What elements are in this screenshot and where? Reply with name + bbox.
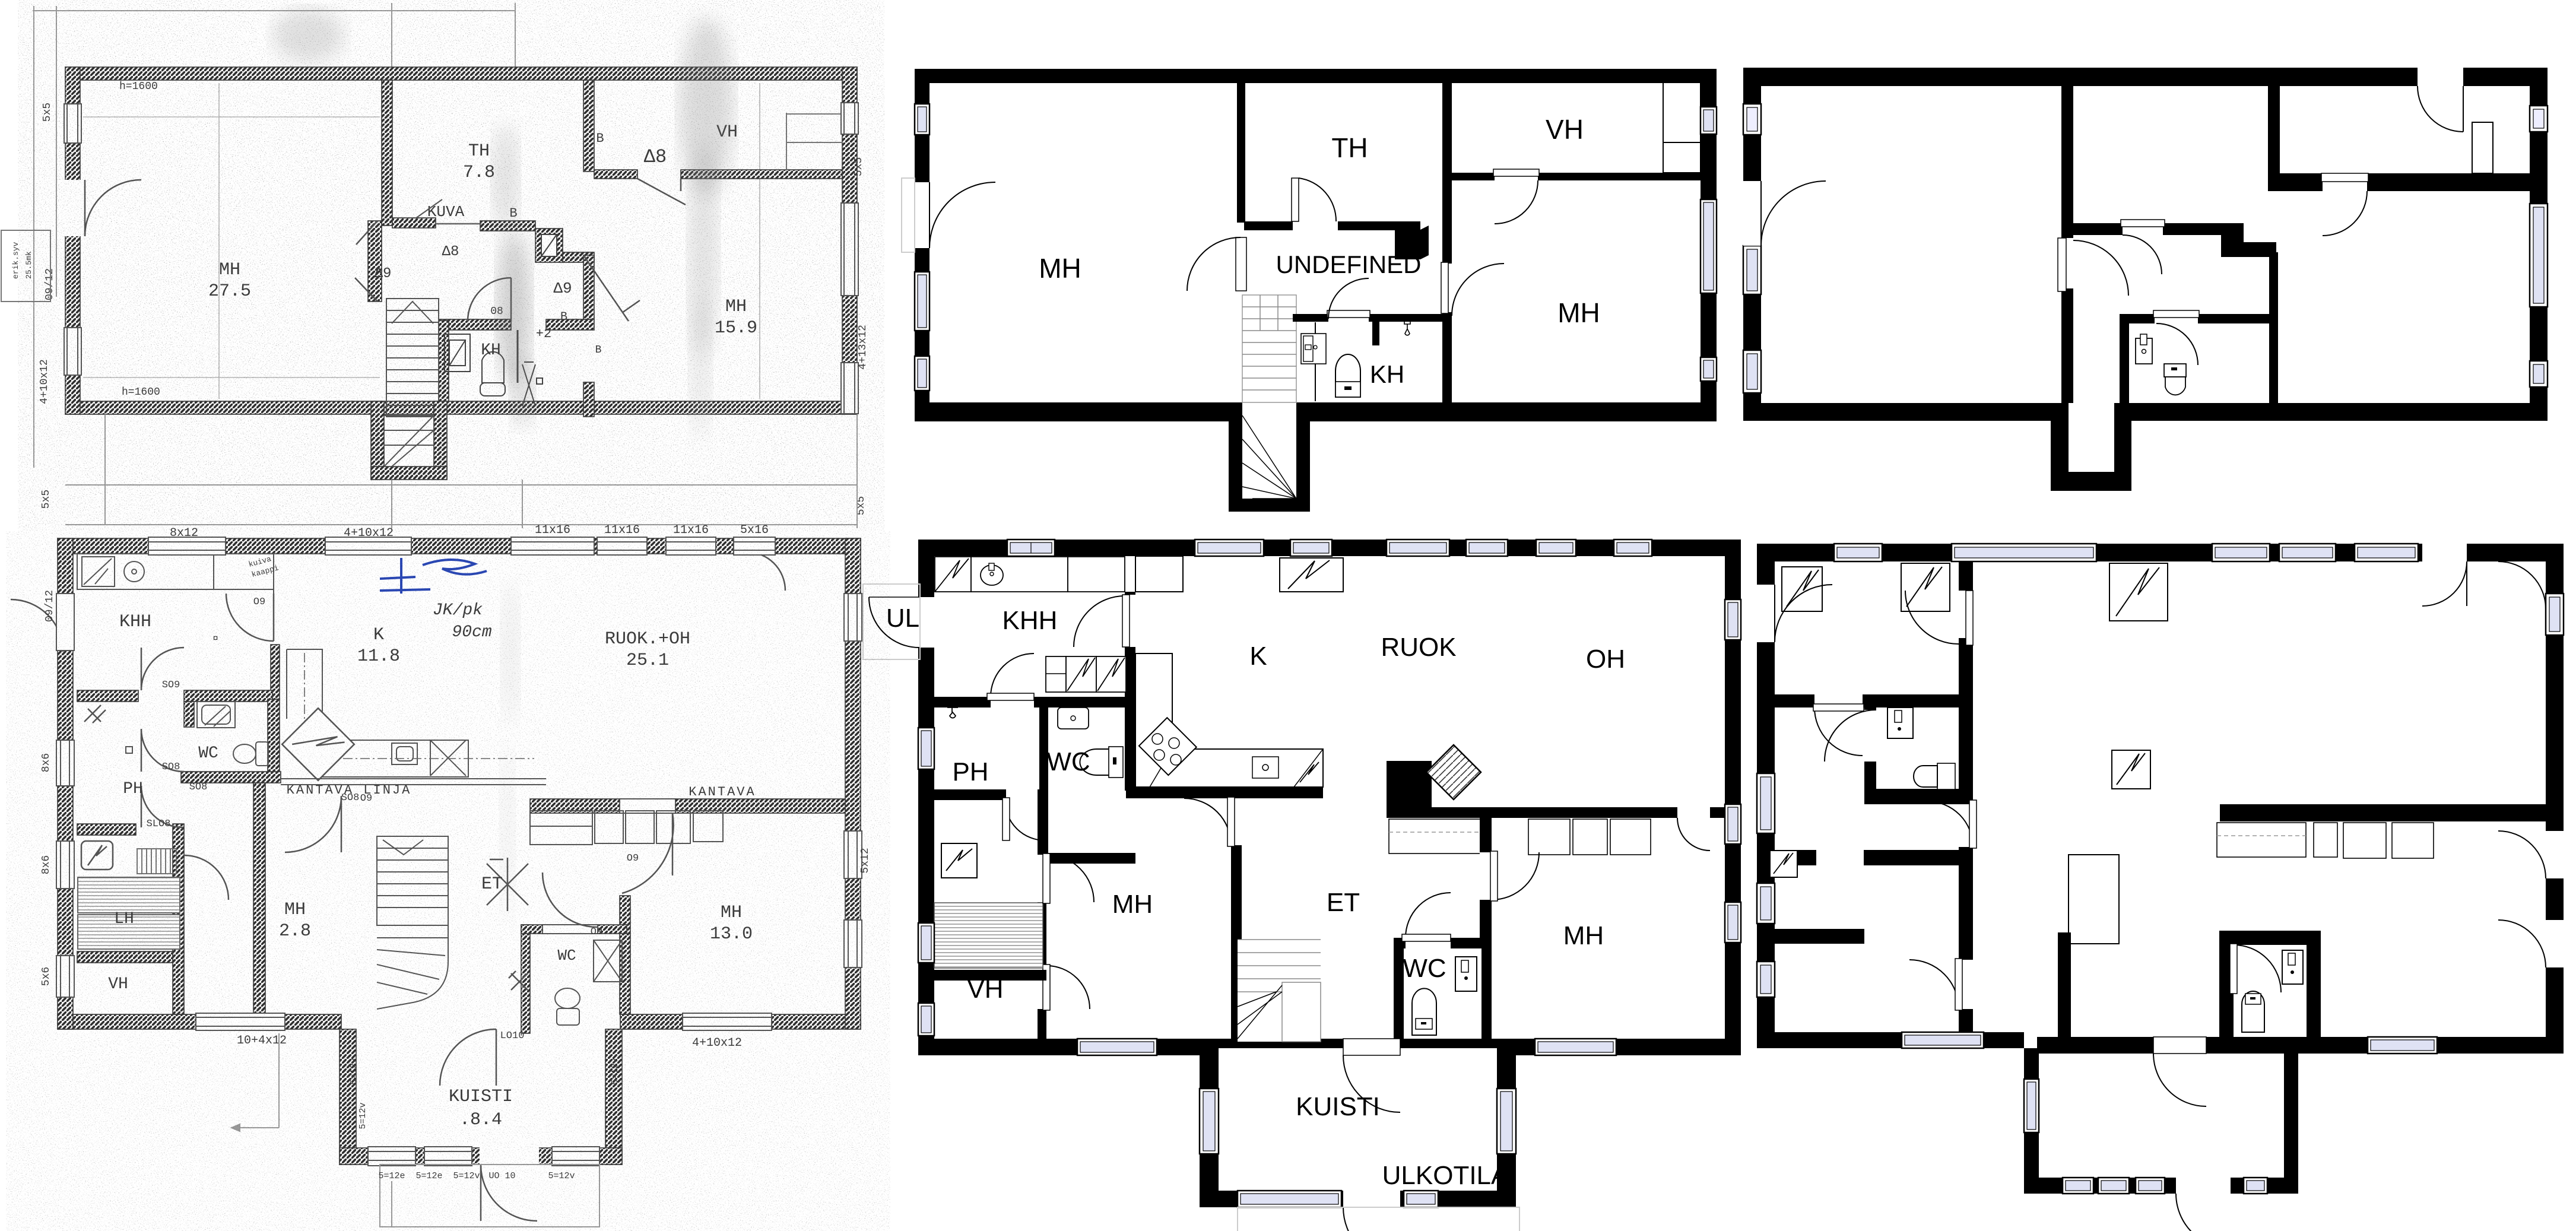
- svg-text:VH: VH: [1546, 114, 1584, 145]
- svg-text:ULKOTILA: ULKOTILA: [1382, 1161, 1509, 1190]
- svg-text:ET: ET: [1327, 888, 1360, 917]
- svg-text:MH: MH: [1557, 297, 1600, 328]
- svg-text:MH: MH: [1039, 253, 1081, 284]
- svg-text:VH: VH: [967, 975, 1003, 1004]
- svg-text:KHH: KHH: [1003, 606, 1058, 635]
- svg-text:TH: TH: [1331, 132, 1368, 163]
- svg-text:OH: OH: [1586, 645, 1625, 674]
- svg-text:MH: MH: [1112, 890, 1153, 919]
- svg-text:PH: PH: [952, 757, 988, 786]
- svg-text:KH: KH: [1370, 360, 1404, 388]
- svg-text:RUOK: RUOK: [1381, 633, 1456, 662]
- svg-text:K: K: [1249, 642, 1267, 671]
- svg-text:UL: UL: [886, 604, 919, 633]
- svg-text:UNDEFINED: UNDEFINED: [1276, 250, 1421, 278]
- svg-text:MH: MH: [1563, 921, 1604, 950]
- svg-text:KUISTI: KUISTI: [1296, 1092, 1380, 1121]
- svg-text:WC: WC: [1046, 747, 1090, 776]
- svg-text:WC: WC: [1403, 954, 1446, 983]
